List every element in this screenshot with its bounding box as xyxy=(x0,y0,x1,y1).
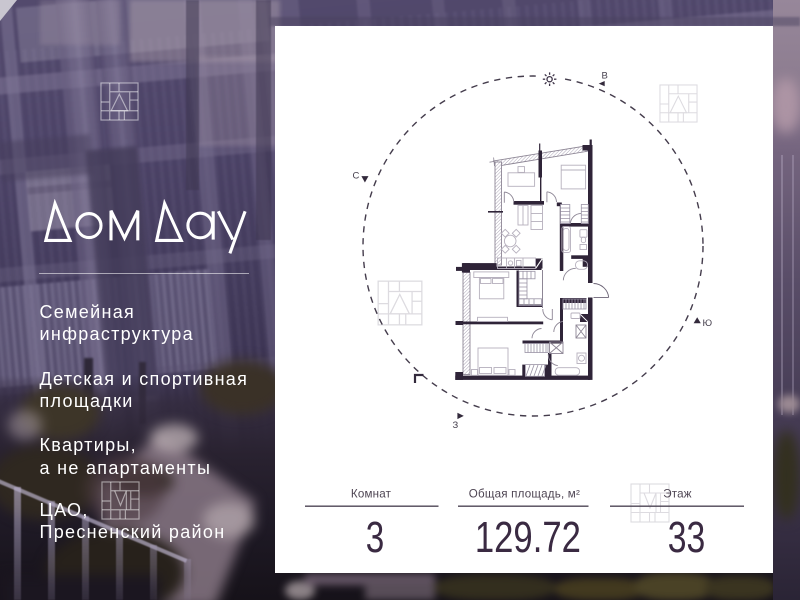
svg-text:129.72: 129.72 xyxy=(475,514,581,562)
svg-text:Этаж: Этаж xyxy=(663,488,692,501)
svg-text:Общая площадь, м²: Общая площадь, м² xyxy=(469,488,580,501)
svg-text:Ю: Ю xyxy=(703,318,713,329)
svg-text:3: 3 xyxy=(366,514,385,562)
svg-text:33: 33 xyxy=(668,514,706,562)
svg-text:С: С xyxy=(353,171,360,182)
svg-text:В: В xyxy=(602,71,608,82)
svg-text:Комнат: Комнат xyxy=(351,488,392,501)
svg-text:З: З xyxy=(453,420,459,431)
